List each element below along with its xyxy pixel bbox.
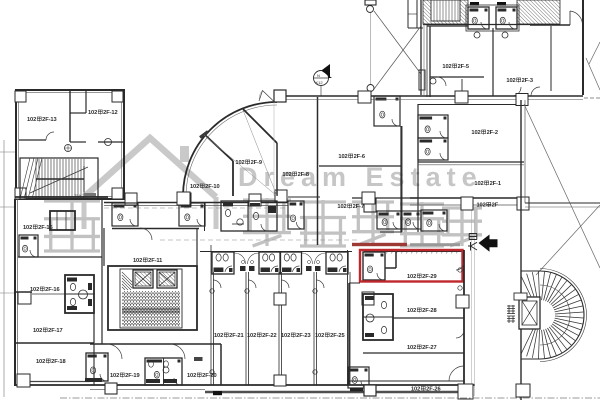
svg-text:2F-2: 2F-2 — [487, 130, 498, 136]
svg-text:2F-18: 2F-18 — [51, 359, 65, 365]
svg-text:2F-7: 2F-7 — [353, 204, 364, 210]
svg-text:2F-17: 2F-17 — [48, 328, 62, 334]
svg-text:102: 102 — [23, 225, 32, 231]
svg-text:102: 102 — [442, 64, 451, 70]
svg-text:102: 102 — [407, 308, 416, 314]
svg-text:102: 102 — [33, 328, 42, 334]
svg-text:102: 102 — [474, 181, 483, 187]
svg-text:102: 102 — [407, 274, 416, 280]
svg-text:102: 102 — [187, 373, 196, 379]
svg-text:2F-1: 2F-1 — [490, 181, 501, 187]
svg-text:102: 102 — [315, 333, 324, 339]
svg-text:2F-3: 2F-3 — [522, 78, 533, 84]
svg-text:102: 102 — [30, 287, 39, 293]
svg-text:102: 102 — [214, 333, 223, 339]
svg-text:2F-19: 2F-19 — [125, 373, 139, 379]
svg-text:102: 102 — [471, 130, 480, 136]
svg-text:102: 102 — [281, 333, 290, 339]
svg-text:102: 102 — [338, 154, 347, 160]
svg-text:2F-10: 2F-10 — [205, 184, 219, 190]
svg-text:2F-9: 2F-9 — [251, 160, 262, 166]
svg-text:102: 102 — [235, 160, 244, 166]
svg-text:102: 102 — [110, 373, 119, 379]
svg-text:102: 102 — [337, 204, 346, 210]
svg-text:2F-5: 2F-5 — [458, 64, 469, 70]
svg-text:102: 102 — [282, 172, 291, 178]
svg-text:K12: K12 — [316, 80, 324, 85]
svg-text:2F-11: 2F-11 — [148, 258, 162, 264]
svg-text:2F-12: 2F-12 — [103, 110, 117, 116]
svg-text:2F-21: 2F-21 — [229, 333, 243, 339]
svg-text:2F-16: 2F-16 — [45, 287, 59, 293]
svg-text:2F: 2F — [492, 203, 499, 209]
svg-text:102: 102 — [27, 117, 36, 123]
svg-text:N: N — [317, 73, 320, 78]
svg-text:2F-27: 2F-27 — [422, 345, 436, 351]
svg-text:102: 102 — [36, 359, 45, 365]
svg-text:102: 102 — [190, 184, 199, 190]
svg-text:102: 102 — [407, 345, 416, 351]
svg-text:102: 102 — [247, 333, 256, 339]
svg-text:2F-13: 2F-13 — [42, 117, 56, 123]
svg-text:2F-25: 2F-25 — [330, 333, 344, 339]
svg-text:102: 102 — [133, 258, 142, 264]
svg-text:2F-20: 2F-20 — [202, 373, 216, 379]
svg-text:2F-6: 2F-6 — [354, 154, 365, 160]
svg-text:102: 102 — [88, 110, 97, 116]
svg-text:102: 102 — [506, 78, 515, 84]
svg-text:102: 102 — [411, 387, 420, 393]
svg-text:2F-23: 2F-23 — [296, 333, 310, 339]
svg-text:2F-15: 2F-15 — [38, 225, 52, 231]
svg-text:2F-28: 2F-28 — [422, 308, 436, 314]
svg-text:2F-22: 2F-22 — [262, 333, 276, 339]
svg-text:2F-26: 2F-26 — [426, 387, 440, 393]
svg-text:102: 102 — [476, 203, 485, 209]
svg-text:2F-8: 2F-8 — [298, 172, 309, 178]
svg-text:2F-29: 2F-29 — [422, 274, 436, 280]
